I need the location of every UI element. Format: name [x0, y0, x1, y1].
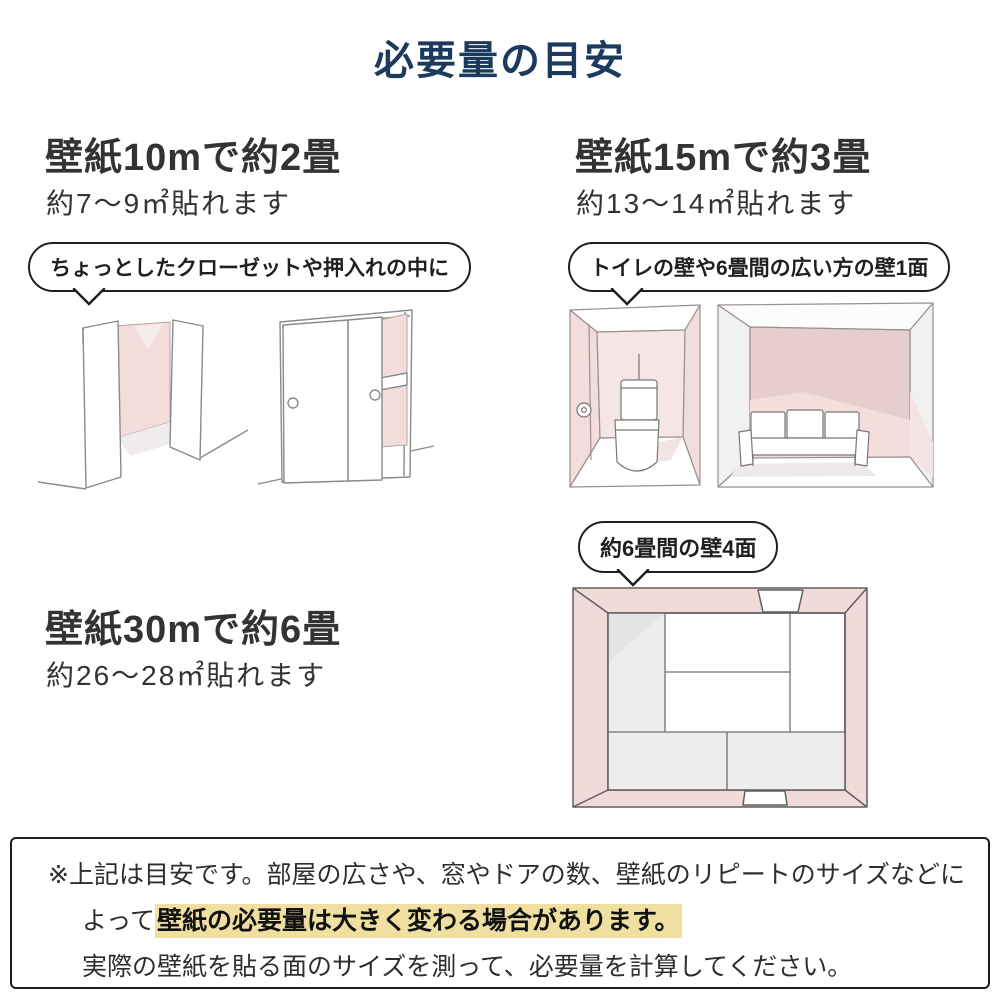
footer-note-box: ※上記は目安です。部屋の広さや、窓やドアの数、壁紙のリピートのサイズなどに よっ… [10, 837, 990, 989]
section-10m-subheading: 約7〜9㎡貼れます [46, 182, 291, 222]
open-closet-illustration [30, 300, 500, 500]
footer-note-line1: ※上記は目安です。部屋の広さや、窓やドアの数、壁紙のリピートのサイズなどに [48, 852, 968, 898]
footer-note-highlight: 壁紙の必要量は大きく変わる場合があります。 [155, 904, 682, 938]
section-10m-heading: 壁紙10mで約2畳 [45, 126, 341, 181]
page-title: 必要量の目安 [0, 28, 1000, 86]
footer-note-line3: 実際の壁紙を貼る面のサイズを測って、必要量を計算してください。 [82, 944, 968, 990]
footer-note-line2: よって壁紙の必要量は大きく変わる場合があります。 [82, 898, 968, 944]
section-30m-bubble-label: 約6畳間の壁4面 [600, 536, 756, 561]
section-10m-bubble-label: ちょっとしたクローゼットや押入れの中に [50, 257, 449, 280]
section-30m-heading: 壁紙30mで約6畳 [45, 598, 341, 653]
speech-bubble-tail-icon [610, 288, 644, 306]
six-tatami-room-top-view-illustration [555, 578, 885, 823]
infographic-page: 必要量の目安 壁紙10mで約2畳 約7〜9㎡貼れます ちょっとしたクローゼットや… [0, 0, 1000, 1000]
section-15m-bubble-label: トイレの壁や6畳間の広い方の壁1面 [590, 257, 928, 280]
section-15m-speech-bubble: トイレの壁や6畳間の広い方の壁1面 [568, 242, 950, 292]
speech-bubble-tail-icon [72, 288, 106, 306]
speech-bubble-tail-icon [616, 569, 650, 587]
section-10m-speech-bubble: ちょっとしたクローゼットや押入れの中に [28, 242, 471, 292]
section-15m-heading: 壁紙15mで約3畳 [575, 126, 871, 181]
section-15m-subheading: 約13〜14㎡貼れます [576, 182, 856, 222]
footer-note-line2-prefix: よって [82, 907, 155, 935]
toilet-and-living-room-illustration [555, 292, 975, 507]
section-30m-subheading: 約26〜28㎡貼れます [46, 654, 326, 694]
section-30m-speech-bubble: 約6畳間の壁4面 [578, 521, 778, 573]
